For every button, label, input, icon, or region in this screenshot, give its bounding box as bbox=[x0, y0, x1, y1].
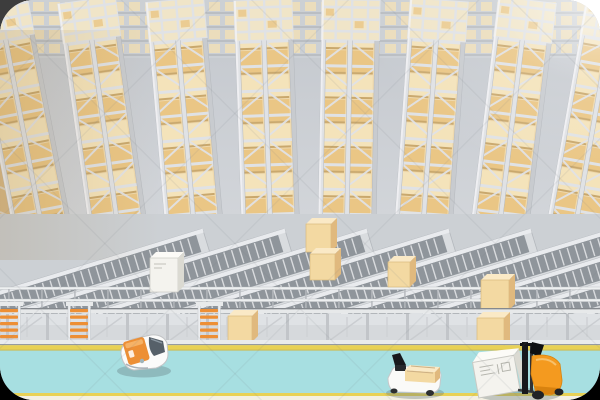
platform-leg bbox=[286, 314, 289, 342]
guard-rail-post bbox=[305, 289, 307, 299]
guard-rail-post bbox=[338, 289, 340, 299]
tan-carton bbox=[310, 248, 341, 280]
guard-rail-post bbox=[140, 289, 142, 299]
guard-rail-post bbox=[437, 289, 439, 299]
tan-carton bbox=[228, 310, 258, 342]
guard-rail-post bbox=[206, 289, 208, 299]
platform-leg-back bbox=[306, 317, 308, 337]
platform-leg-back bbox=[466, 317, 468, 337]
mezzanine-platform-layer bbox=[0, 302, 600, 351]
guard-rail-post bbox=[41, 289, 43, 299]
guard-rail-post bbox=[404, 289, 406, 299]
platform-leg bbox=[46, 314, 49, 342]
guard-rail-post bbox=[272, 289, 274, 299]
platform-leg bbox=[166, 314, 169, 342]
guard-rail-post bbox=[536, 289, 538, 299]
guard-rail-post bbox=[74, 289, 76, 299]
yellow-edge-stripe bbox=[0, 345, 600, 349]
agv-cart-carton bbox=[405, 365, 440, 383]
warehouse-scene bbox=[0, 0, 600, 400]
tan-carton bbox=[306, 218, 337, 252]
guard-rail-post bbox=[371, 289, 373, 299]
guard-rail-post bbox=[239, 289, 241, 299]
tan-carton bbox=[481, 274, 515, 310]
forklift-wheel-rear bbox=[555, 389, 564, 396]
rounded-image-frame bbox=[0, 0, 600, 400]
platform-leg bbox=[406, 314, 409, 342]
guard-rail-post bbox=[569, 289, 571, 299]
forklift-mast bbox=[522, 342, 528, 394]
forklift-wheel-front bbox=[532, 391, 544, 400]
deck-edge-line bbox=[0, 344, 600, 345]
top-right-flare bbox=[330, 0, 600, 200]
deck-edge bbox=[0, 340, 600, 344]
agv-cart-seat bbox=[395, 365, 406, 371]
guard-rail-post bbox=[470, 289, 472, 299]
storage-rack bbox=[234, 0, 300, 241]
guard-rail-post bbox=[8, 289, 10, 299]
platform-leg bbox=[526, 314, 529, 342]
platform-leg-back bbox=[66, 317, 68, 337]
warehouse-illustration bbox=[0, 0, 600, 400]
tan-carton bbox=[388, 256, 416, 287]
platform-leg-back bbox=[386, 317, 388, 337]
platform-leg-back bbox=[546, 317, 548, 337]
platform-leg bbox=[326, 314, 329, 342]
platform-leg-back bbox=[146, 317, 148, 337]
agv-robot-logo-dot bbox=[140, 359, 144, 363]
left-shade-overlay bbox=[0, 30, 160, 260]
platform-leg bbox=[566, 314, 569, 342]
platform-leg bbox=[366, 314, 369, 342]
platform-leg bbox=[446, 314, 449, 342]
guard-rail-post bbox=[107, 289, 109, 299]
agv-cart-wheel-front bbox=[426, 390, 434, 396]
agv-cart-wheel-rear bbox=[391, 389, 398, 394]
platform-leg bbox=[126, 314, 129, 342]
